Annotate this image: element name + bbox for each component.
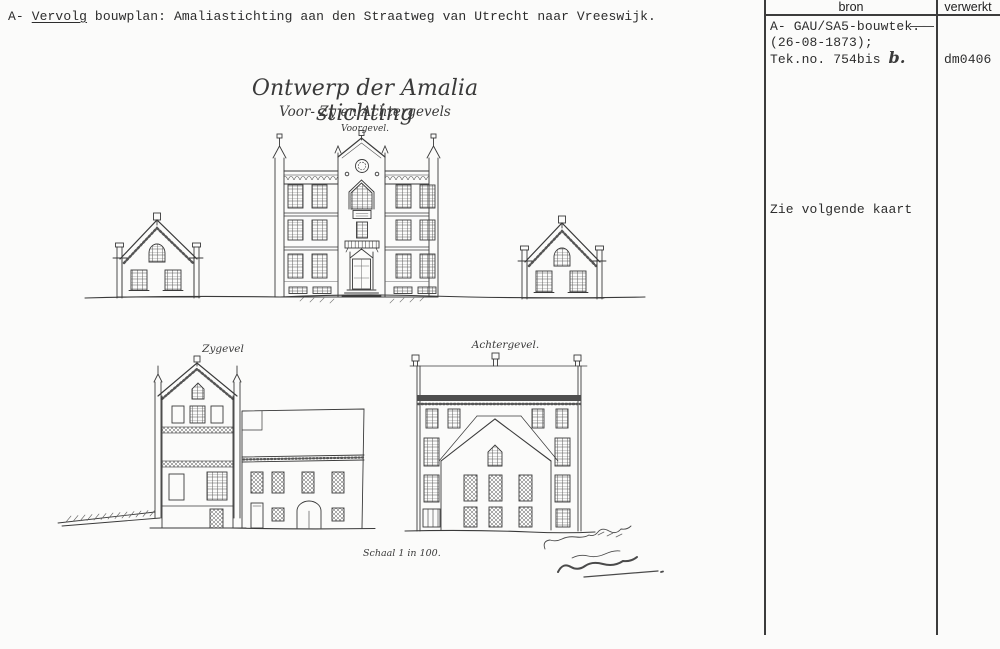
front-elevation-right-annex [518, 216, 606, 299]
side-elevation-zygevel [58, 356, 375, 529]
column-header-bron: bron [766, 0, 936, 14]
caption-underlined-word: Vervolg [32, 9, 87, 24]
architectural-drawing [40, 130, 690, 590]
caption-rest: bouwplan: Amaliastichting aan den Straat… [87, 9, 656, 24]
pen-dash-mark [910, 26, 934, 27]
bron-line-2: (26-08-1873); [770, 35, 935, 51]
handwritten-annotation-b: b. [889, 48, 906, 67]
caption-prefix: A- [8, 9, 32, 24]
document-caption-line: A- Vervolg bouwplan: Amaliastichting aan… [8, 9, 656, 24]
rear-elevation-achtergevel [405, 353, 622, 537]
archive-card-page: { "header": { "prefix": "A- ", "underlin… [0, 0, 1000, 649]
front-elevation-main-building [273, 131, 440, 298]
verwerkt-value: dm0406 [944, 52, 991, 67]
front-elevation-left-annex [113, 213, 203, 298]
signature-inscription [544, 526, 663, 577]
bron-note: Zie volgende kaart [770, 202, 912, 217]
table-header-underline [764, 14, 1000, 16]
column-header-verwerkt: verwerkt [938, 0, 998, 14]
bron-line-3: Tek.no. 754bis b. [770, 50, 935, 68]
table-column-divider [936, 0, 938, 635]
drawing-subtitle: Voor- Zy en Achtergevels [240, 104, 490, 120]
table-border-left [764, 0, 766, 635]
